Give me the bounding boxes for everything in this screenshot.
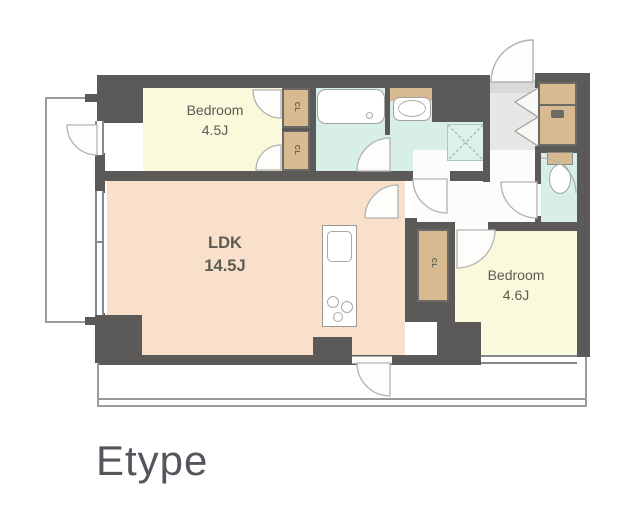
ldk-name: LDK: [160, 232, 290, 255]
floor-plan: Bedroom 4.5J LDK 14.5J Bedroom 4.6J CL C…: [0, 0, 640, 511]
stove-burner-3: [333, 312, 343, 322]
wall-step-block: [437, 322, 481, 357]
wall-entrance-left: [483, 118, 490, 182]
wall-kitchen-end: [313, 337, 352, 357]
wall-corner-bl: [97, 315, 142, 357]
balcony-door-arc: [357, 363, 390, 396]
wall-ldk-bottom: [97, 355, 481, 365]
bedroom1-casement-arc: [67, 125, 97, 155]
bedroom-1-label: Bedroom 4.5J: [150, 101, 280, 140]
bedroom2-window: [481, 355, 577, 364]
bathtub-drain-icon: [366, 112, 373, 119]
shoe-cabinet-divider: [540, 104, 575, 106]
stove-burner-1: [327, 296, 339, 308]
ldk-area: 14.5J: [160, 255, 290, 278]
entrance-threshold: [490, 80, 535, 93]
left-balcony-stub-bottom: [85, 317, 103, 325]
bedroom1-window: [95, 121, 104, 155]
wall-bedroom1-bottom: [97, 171, 413, 181]
toilet-bowl: [549, 164, 571, 194]
bedroom-2-label: Bedroom 4.6J: [451, 266, 581, 305]
entrance-floor: [490, 93, 537, 150]
kitchen-sink: [327, 231, 352, 262]
wall-bath-divider: [385, 88, 390, 135]
washing-machine-pan: [447, 124, 484, 161]
wall-bedroom1-right: [310, 83, 316, 171]
bottom-balcony-right: [585, 357, 587, 407]
ldk-window: [95, 191, 104, 315]
wall-closet-divider: [282, 128, 310, 131]
balcony-door-opening: [352, 356, 392, 364]
closet-2-label: CL: [288, 142, 304, 158]
bathtub: [317, 89, 385, 124]
left-balcony-stub-top: [85, 94, 103, 102]
wall-block-top: [432, 85, 490, 122]
bottom-balcony-rail-2: [97, 405, 587, 407]
entrance-door-arc: [491, 40, 533, 82]
wall-below-closet3: [417, 302, 449, 322]
bedroom-2-name: Bedroom: [451, 266, 581, 286]
bedroom-1-area: 4.5J: [150, 121, 280, 141]
closet-1-label: CL: [288, 99, 304, 115]
closet-3-label: CL: [425, 255, 441, 271]
washbasin-bowl-icon: [398, 100, 426, 117]
stove-burner-2: [341, 301, 353, 313]
wall-ldk-right: [405, 218, 417, 322]
wall-corner-tl: [97, 75, 143, 123]
hallway-floor: [413, 150, 537, 230]
bedroom-2-area: 4.6J: [451, 286, 581, 306]
wall-right: [577, 73, 590, 357]
bottom-balcony-left: [97, 363, 99, 407]
wall-bedroom2-top-right: [488, 222, 590, 231]
shoe-cabinet-handle-icon: [551, 110, 564, 118]
bottom-balcony-rail-1: [97, 398, 587, 400]
ldk-window-mullion: [95, 241, 104, 243]
ldk-label: LDK 14.5J: [160, 232, 290, 278]
plan-title: Etype: [96, 437, 208, 485]
bedroom-1-name: Bedroom: [150, 101, 280, 121]
left-balcony-side: [45, 97, 47, 323]
